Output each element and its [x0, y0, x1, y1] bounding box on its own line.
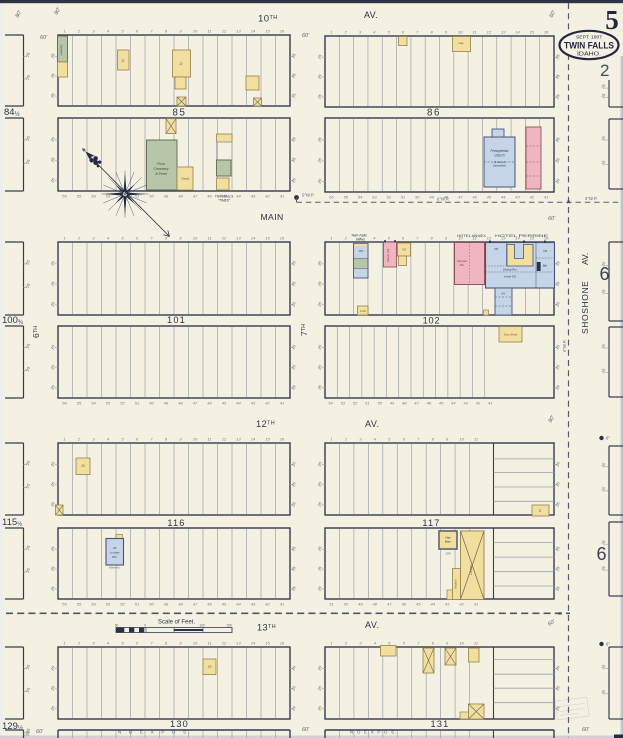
- svg-text:46: 46: [472, 195, 477, 200]
- svg-text:SHOSHONE: SHOSHONE: [580, 281, 590, 334]
- svg-text:13: 13: [236, 236, 241, 241]
- svg-text:Scale of Feet.: Scale of Feet.: [158, 620, 195, 626]
- svg-text:45: 45: [439, 401, 444, 406]
- svg-text:54: 54: [358, 195, 363, 200]
- svg-text:42: 42: [530, 195, 535, 200]
- svg-text:12: 12: [222, 236, 227, 241]
- svg-text:Kit.: Kit.: [501, 292, 505, 296]
- svg-text:14: 14: [251, 641, 256, 646]
- svg-text:55: 55: [77, 401, 82, 406]
- svg-text:48: 48: [178, 194, 183, 199]
- svg-text:15: 15: [265, 236, 270, 241]
- svg-text:10: 10: [193, 236, 198, 241]
- svg-text:Flour: Flour: [157, 162, 166, 166]
- svg-text:Coal: Coal: [360, 309, 366, 313]
- svg-text:131: 131: [431, 719, 450, 729]
- svg-text:50: 50: [149, 602, 154, 607]
- svg-text:15: 15: [265, 641, 270, 646]
- svg-text:AV.: AV.: [364, 10, 378, 20]
- svg-text:60': 60': [40, 35, 48, 41]
- svg-text:60': 60': [582, 727, 590, 733]
- svg-text:51: 51: [135, 401, 139, 406]
- svg-text:52: 52: [120, 602, 125, 607]
- svg-text:basement): basement): [493, 164, 506, 168]
- svg-text:56: 56: [329, 195, 334, 200]
- svg-text:51: 51: [135, 602, 139, 607]
- svg-text:Church: Church: [494, 154, 505, 158]
- svg-text:41: 41: [280, 401, 284, 406]
- svg-text:10: 10: [193, 437, 198, 442]
- svg-text:15: 15: [530, 30, 535, 35]
- svg-text:49: 49: [390, 401, 395, 406]
- svg-text:49: 49: [164, 194, 169, 199]
- svg-text:41: 41: [488, 401, 492, 406]
- svg-text:47: 47: [387, 602, 392, 607]
- svg-text:20: 20: [207, 665, 212, 669]
- svg-text:86: 86: [427, 107, 441, 118]
- svg-text:16: 16: [280, 641, 285, 646]
- svg-text:10: 10: [459, 437, 464, 442]
- svg-text:150: 150: [226, 623, 232, 627]
- svg-text:46: 46: [207, 602, 212, 607]
- svg-text:43: 43: [251, 194, 256, 199]
- svg-text:16: 16: [280, 236, 285, 241]
- svg-text:Ware ho.: Ware ho.: [109, 566, 121, 570]
- svg-text:45: 45: [222, 401, 227, 406]
- svg-text:1: 1: [63, 437, 65, 442]
- svg-text:1: 1: [330, 641, 332, 646]
- svg-text:55: 55: [77, 194, 82, 199]
- svg-text:41: 41: [474, 602, 478, 607]
- svg-text:12: 12: [222, 437, 227, 442]
- svg-text:12: 12: [222, 641, 227, 646]
- svg-text:11: 11: [473, 30, 477, 35]
- svg-text:60': 60': [36, 729, 44, 735]
- svg-text:54: 54: [91, 194, 96, 199]
- svg-text:14: 14: [515, 30, 520, 35]
- svg-text:60': 60': [302, 727, 310, 733]
- svg-text:46: 46: [207, 194, 212, 199]
- svg-text:42: 42: [265, 401, 270, 406]
- svg-text:45: 45: [222, 602, 227, 607]
- svg-text:60': 60': [302, 33, 310, 39]
- svg-text:11: 11: [474, 437, 478, 442]
- svg-text:6": 6": [606, 436, 610, 441]
- svg-text:42: 42: [459, 602, 464, 607]
- svg-text:49: 49: [164, 401, 169, 406]
- svg-text:42: 42: [265, 194, 270, 199]
- svg-text:44: 44: [236, 602, 241, 607]
- svg-text:45: 45: [487, 195, 492, 200]
- svg-text:116: 116: [167, 518, 185, 528]
- svg-text:×: ×: [566, 200, 570, 207]
- svg-text:Laundry: Laundry: [59, 44, 63, 55]
- svg-text:47: 47: [193, 194, 198, 199]
- svg-text:56: 56: [62, 401, 67, 406]
- svg-text:Gas Shed: Gas Shed: [504, 333, 518, 337]
- svg-text:56: 56: [62, 194, 67, 199]
- svg-text:13: 13: [236, 641, 241, 646]
- svg-text:12: 12: [487, 236, 492, 241]
- svg-text:N O E X P O S.: N O E X P O S.: [118, 730, 194, 735]
- svg-text:44: 44: [451, 401, 456, 406]
- svg-text:16: 16: [280, 29, 285, 34]
- svg-text:42: 42: [476, 401, 481, 406]
- svg-text:Wagons: Wagons: [454, 579, 458, 589]
- svg-text:& Feed: & Feed: [156, 172, 167, 176]
- svg-text:20: 20: [80, 464, 85, 468]
- svg-text:0: 0: [144, 623, 146, 627]
- svg-text:10: 10: [193, 641, 198, 646]
- svg-text:10: 10: [458, 30, 463, 35]
- svg-text:13: 13: [236, 29, 241, 34]
- svg-text:10: 10: [193, 29, 198, 34]
- svg-text:11: 11: [207, 236, 211, 241]
- svg-text:11: 11: [207, 437, 211, 442]
- svg-text:AV.: AV.: [365, 419, 380, 429]
- svg-text:42: 42: [265, 602, 270, 607]
- svg-text:15: 15: [265, 437, 270, 442]
- svg-text:6": 6": [606, 642, 610, 647]
- svg-text:43: 43: [251, 602, 256, 607]
- svg-text:1: 1: [330, 437, 332, 442]
- svg-text:48: 48: [178, 602, 183, 607]
- svg-text:20: 20: [112, 546, 117, 550]
- svg-text:43: 43: [251, 401, 256, 406]
- svg-text:53: 53: [106, 602, 111, 607]
- svg-text:16: 16: [544, 30, 549, 35]
- svg-text:48: 48: [444, 195, 449, 200]
- svg-text:53: 53: [372, 195, 377, 200]
- svg-text:85: 85: [173, 107, 187, 118]
- svg-text:47: 47: [414, 401, 419, 406]
- svg-text:6"W.P.: 6"W.P.: [562, 340, 567, 352]
- svg-text:52: 52: [120, 401, 125, 406]
- svg-text:50: 50: [149, 401, 154, 406]
- svg-text:50: 50: [149, 194, 154, 199]
- svg-text:6"W.P.: 6"W.P.: [302, 193, 314, 198]
- svg-text:N O E X P O S.: N O E X P O S.: [350, 730, 398, 735]
- svg-text:56: 56: [62, 602, 67, 607]
- svg-text:48: 48: [373, 602, 378, 607]
- svg-text:2: 2: [600, 61, 609, 80]
- svg-text:IDAHO.: IDAHO.: [577, 52, 601, 58]
- svg-text:280: 280: [444, 552, 450, 556]
- svg-text:55: 55: [344, 195, 349, 200]
- svg-text:47: 47: [458, 195, 463, 200]
- svg-text:14: 14: [251, 29, 256, 34]
- svg-text:Presbyterian: Presbyterian: [491, 149, 509, 153]
- svg-text:50: 50: [115, 623, 119, 627]
- svg-text:16: 16: [280, 437, 285, 442]
- svg-text:51: 51: [401, 195, 405, 200]
- svg-text:43: 43: [445, 602, 450, 607]
- svg-text:102: 102: [423, 316, 441, 326]
- svg-text:TWIN FALLS: TWIN FALLS: [564, 40, 614, 51]
- svg-text:117: 117: [422, 518, 440, 528]
- svg-text:41: 41: [544, 195, 548, 200]
- svg-text:13: 13: [236, 437, 241, 442]
- svg-text:47: 47: [193, 602, 198, 607]
- svg-text:MAIN: MAIN: [261, 212, 284, 222]
- svg-text:1: 1: [63, 29, 65, 34]
- svg-text:41: 41: [280, 194, 284, 199]
- svg-text:48: 48: [178, 401, 183, 406]
- svg-text:47: 47: [193, 401, 198, 406]
- svg-text:55: 55: [77, 602, 82, 607]
- svg-text:1: 1: [63, 236, 65, 241]
- svg-text:Lumber: Lumber: [110, 551, 121, 555]
- svg-text:46: 46: [427, 401, 432, 406]
- svg-text:100: 100: [199, 623, 205, 627]
- svg-text:52: 52: [386, 195, 391, 200]
- svg-text:1: 1: [63, 641, 65, 646]
- svg-text:Hay: Hay: [458, 41, 464, 45]
- svg-text:48: 48: [402, 401, 407, 406]
- svg-text:53: 53: [341, 401, 346, 406]
- svg-text:Steam Ptg.: Steam Ptg.: [386, 248, 390, 262]
- svg-text:50: 50: [415, 195, 420, 200]
- svg-text:6"W.P.: 6"W.P.: [585, 196, 597, 201]
- svg-text:D: D: [180, 61, 183, 66]
- svg-text:News: News: [356, 238, 365, 242]
- svg-text:43: 43: [463, 401, 468, 406]
- svg-text:Creamery: Creamery: [154, 167, 169, 171]
- svg-text:11: 11: [207, 29, 211, 34]
- svg-text:54: 54: [91, 401, 96, 406]
- svg-text:AV.: AV.: [365, 620, 380, 630]
- svg-text:51: 51: [365, 401, 369, 406]
- svg-text:15: 15: [265, 29, 270, 34]
- svg-text:1: 1: [330, 30, 332, 35]
- svg-text:46: 46: [402, 602, 407, 607]
- svg-text:Dining Rm: Dining Rm: [503, 267, 517, 271]
- svg-text:49: 49: [358, 602, 363, 607]
- svg-text:11: 11: [474, 641, 478, 646]
- svg-text:12: 12: [222, 29, 227, 34]
- svg-text:Hotel Off: Hotel Off: [504, 275, 517, 279]
- svg-text:45: 45: [416, 602, 421, 607]
- svg-text:6: 6: [599, 264, 609, 284]
- svg-text:44: 44: [501, 195, 506, 200]
- svg-text:41: 41: [280, 602, 284, 607]
- svg-text:49: 49: [164, 602, 169, 607]
- svg-text:1: 1: [330, 236, 332, 241]
- svg-text:5: 5: [605, 5, 619, 35]
- svg-text:Feed: Feed: [181, 177, 188, 181]
- svg-text:60': 60': [548, 216, 556, 222]
- svg-text:44: 44: [430, 602, 435, 607]
- svg-text:50: 50: [377, 401, 382, 406]
- svg-text:Livery: Livery: [469, 565, 473, 575]
- svg-text:46: 46: [207, 401, 212, 406]
- svg-text:HOTEL ANNEX: HOTEL ANNEX: [457, 233, 486, 238]
- svg-text:54: 54: [91, 602, 96, 607]
- svg-text:HOTEL PERRINE: HOTEL PERRINE: [495, 233, 549, 238]
- svg-text:53: 53: [106, 401, 111, 406]
- svg-text:6: 6: [596, 544, 606, 564]
- svg-text:AV.: AV.: [580, 253, 590, 265]
- svg-text:101: 101: [167, 315, 186, 325]
- svg-text:50: 50: [344, 602, 349, 607]
- svg-text:44: 44: [236, 194, 241, 199]
- svg-text:11: 11: [207, 641, 211, 646]
- svg-text:Rm: Rm: [460, 263, 465, 267]
- svg-text:13: 13: [501, 30, 506, 35]
- svg-text:×: ×: [558, 611, 562, 618]
- svg-text:14: 14: [251, 236, 256, 241]
- svg-text:49: 49: [429, 195, 434, 200]
- svg-text:51: 51: [329, 602, 333, 607]
- svg-text:Wh.: Wh.: [112, 555, 117, 559]
- svg-text:130: 130: [170, 719, 189, 729]
- svg-text:(1 story &: (1 story &: [494, 160, 506, 164]
- svg-text:Barn: Barn: [445, 540, 452, 544]
- svg-text:44: 44: [236, 401, 241, 406]
- svg-text:54: 54: [328, 401, 333, 406]
- svg-text:"TIMES": "TIMES": [218, 199, 231, 203]
- svg-text:43: 43: [515, 195, 520, 200]
- svg-text:10: 10: [459, 641, 464, 646]
- svg-text:52: 52: [353, 401, 358, 406]
- svg-text:14: 14: [251, 437, 256, 442]
- svg-text:D: D: [122, 58, 125, 63]
- svg-text:12: 12: [487, 30, 492, 35]
